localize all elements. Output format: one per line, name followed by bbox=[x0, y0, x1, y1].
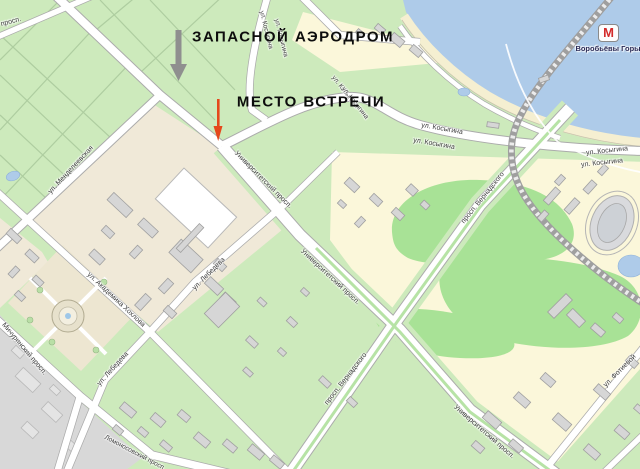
map-canvas: ул. Косыгинаул. Косыгинаул. Косыгинаул. … bbox=[0, 0, 640, 469]
annotation-airfield-label: ЗАПАСНОЙ АЭРОДРОМ bbox=[192, 29, 394, 46]
metro-station-label: Воробьёвы Горы bbox=[575, 44, 640, 53]
map-base-layer bbox=[0, 0, 640, 469]
annotation-meeting-label: МЕСТО ВСТРЕЧИ bbox=[237, 94, 385, 111]
metro-icon: М bbox=[598, 24, 619, 42]
